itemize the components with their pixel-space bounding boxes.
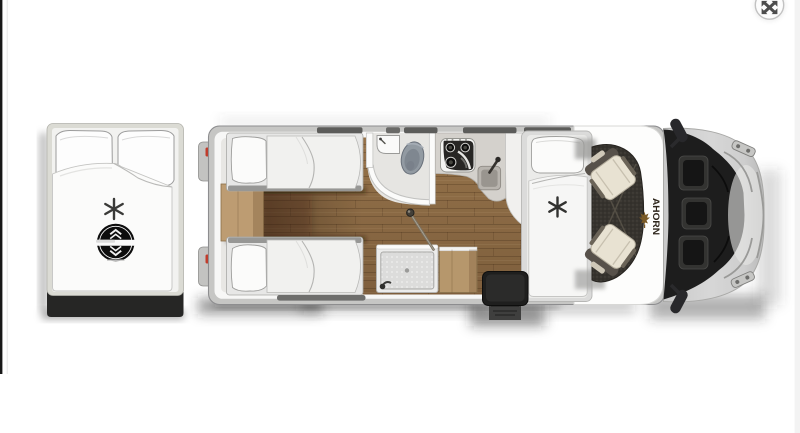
svg-text:AHORN: AHORN [650,198,661,235]
